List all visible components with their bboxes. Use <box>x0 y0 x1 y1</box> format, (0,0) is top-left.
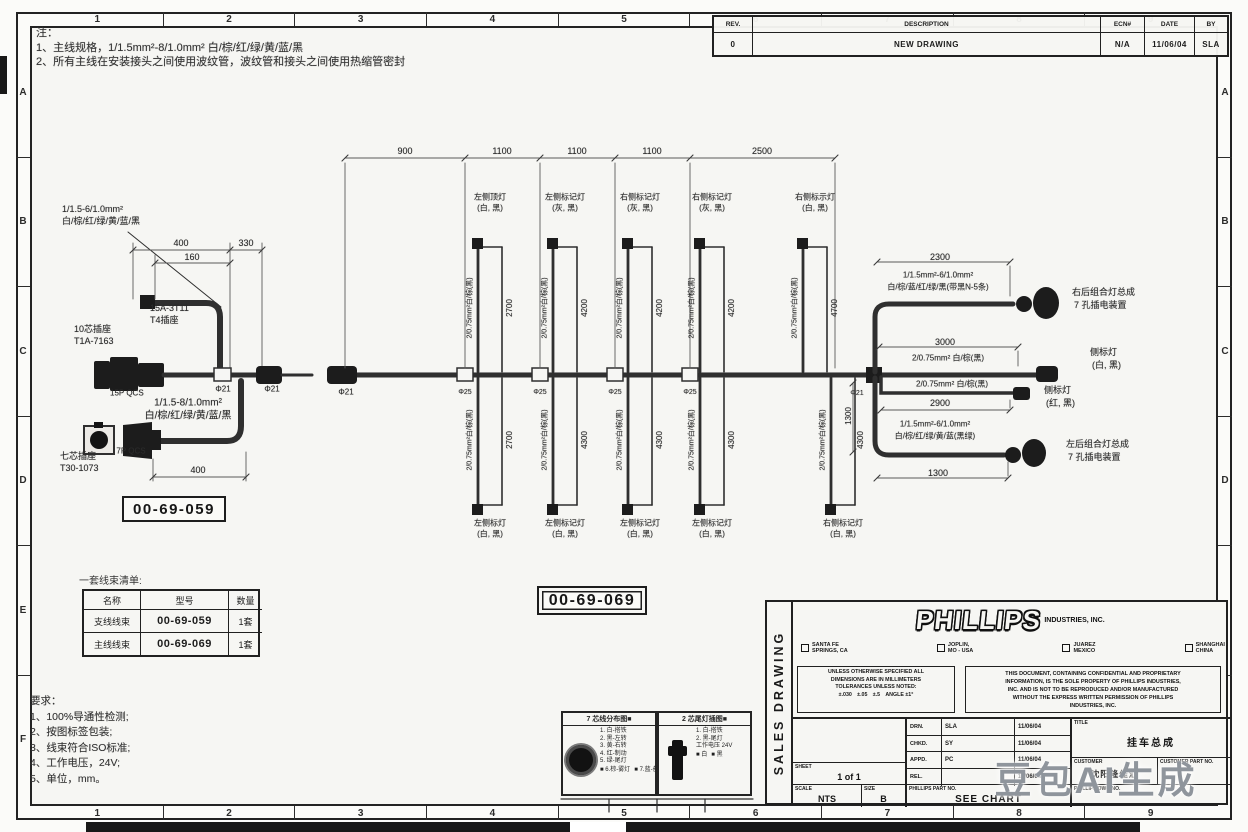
tolerance-line: ±.030 ±.05 ±.5 ANGLE ±1° <box>798 692 954 700</box>
diagram-label: Φ21 <box>850 390 863 397</box>
diagram-label: 1100 <box>567 147 586 156</box>
sheet-cell: SHEET 1 of 1 <box>793 762 907 784</box>
disclaimer-line: INDUSTRIES, INC. <box>966 702 1220 710</box>
diagram-label: (红, 黑) <box>1046 399 1075 408</box>
diagram-label: (白, 黑) <box>477 205 503 213</box>
harness-header: 数量 <box>228 591 262 609</box>
size-cell: SIZE B <box>862 784 907 807</box>
diagram-label: 白/棕/红/绿/黄/蓝/黑 <box>145 412 232 422</box>
tolerance-line: UNLESS OTHERWISE SPECIFIED ALL <box>798 669 954 677</box>
requirement-item: 3、线束符合ISO标准; <box>30 741 130 757</box>
diagram-label: 2/0.75mm²白/棕(黑) <box>617 277 624 338</box>
diagram-label: 2300 <box>930 253 950 262</box>
diagram-label: 2700 <box>506 431 514 449</box>
legend-swatch: ■ 6.棕-雾灯 <box>600 767 630 775</box>
diagram-label: Φ25 <box>458 389 471 396</box>
ai-watermark: 豆包AI生成 <box>950 748 1242 806</box>
diagram-label: Φ21 <box>264 386 279 394</box>
location-checkbox-group: JUAREZMEXICO <box>1062 642 1095 654</box>
diagram-label: 2/0.75mm²白/棕(黑) <box>792 277 799 338</box>
diagram-label: (灰, 黑) <box>627 205 653 213</box>
diagram-label: Φ25 <box>533 389 546 396</box>
diagram-label: 160 <box>184 253 199 262</box>
diagram-label: 左侧标记灯 <box>692 520 732 528</box>
diagram-label: 400 <box>173 239 188 248</box>
checkbox-label-line: MEXICO <box>1073 648 1095 654</box>
checkbox-label-line: MO - USA <box>948 648 973 654</box>
diagram-label: (白, 黑) <box>830 531 856 539</box>
note-line: 1、主线规格，1/1.5mm²-8/1.0mm² 白/棕/红/绿/黄/蓝/黑 <box>36 41 405 56</box>
diagram-label: 7P QCS <box>116 448 145 456</box>
diagram-label: 2/0.75mm² 白/棕(黑) <box>912 355 984 363</box>
harness-cell: 1套 <box>228 632 262 655</box>
diagram-label: 2/0.75mm²白/棕(黑) <box>820 409 827 470</box>
diagram-label: 2/0.75mm²白/棕(黑) <box>467 409 474 470</box>
rev-header: BY <box>1194 17 1227 32</box>
diagram-label: 2700 <box>506 299 514 317</box>
2pin-plug-icon <box>659 726 695 794</box>
disclaimer-line: INFORMATION, IS THE SOLE PROPERTY OF PHI… <box>966 678 1220 686</box>
diagram-label: 1/1.5mm²-6/1.0mm² <box>903 272 973 280</box>
disclaimer-line: INC. AND IS NOT TO BE REPRODUCED AND/OR … <box>966 686 1220 694</box>
diagram-label: 2500 <box>752 147 772 156</box>
phillips-logo: PHILLIPS INDUSTRIES, INC. <box>793 604 1228 636</box>
diagram-label: 1300 <box>845 407 853 425</box>
diagram-label: 7 孔插电装置 <box>1074 301 1127 310</box>
diagram-label: 侧标灯 <box>1044 386 1071 395</box>
diagram-label: T4插座 <box>150 316 179 325</box>
logo-text: PHILLIPS <box>915 605 1043 636</box>
checkbox-label: SHANGHAICHINA <box>1196 642 1225 654</box>
legend-2pin-title: 2 芯尾灯插图■ <box>659 713 750 726</box>
sales-drawing-strip: SALES DRAWING <box>767 602 793 803</box>
checkbox-icon <box>937 644 945 652</box>
diagram-label: 2/0.75mm²白/棕(黑) <box>542 409 549 470</box>
location-checkbox-group: SHANGHAICHINA <box>1185 642 1225 654</box>
signature-role: DRN. <box>907 724 941 730</box>
rev-header: ECN# <box>1100 17 1144 32</box>
legend-7pin-lines: 1. 白-搭铁2. 黑-左转3. 黄-右转4. 红-制动5. 绿-尾灯 ■ 6.… <box>599 726 655 794</box>
sheet-value: 1 of 1 <box>793 769 905 784</box>
harness-cell: 00-69-059 <box>140 609 228 632</box>
legend-2pin: 2 芯尾灯插图■ 1. 白-搭铁2. 黑-尾灯工作电压 24V ■ 白■ 黑 <box>657 711 752 796</box>
harness-list-table: 名称型号数量支线线束00-69-0591套主线线束00-69-0691套 <box>82 589 260 657</box>
legend-line: 工作电压 24V <box>696 743 749 751</box>
diagram-label: 330 <box>238 239 253 248</box>
size-value: B <box>862 791 905 807</box>
diagram-label: (灰, 黑) <box>552 205 578 213</box>
requirement-item: 4、工作电压，24V; <box>30 756 130 772</box>
checkbox-icon <box>801 644 809 652</box>
diagram-label: 15A-3T11 <box>150 304 189 313</box>
signature-date: 11/06/04 <box>1014 719 1070 735</box>
diagram-label: 2/0.75mm²白/棕(黑) <box>689 409 696 470</box>
diagram-label: 1100 <box>492 147 511 156</box>
harness-cell: 1套 <box>228 609 262 632</box>
7pin-connector-icon <box>563 726 599 794</box>
rev-cell: N/A <box>1100 32 1144 55</box>
part-number-box-branch: 00-69-059 <box>122 496 226 522</box>
part-number-main: 00-69-069 <box>549 592 635 610</box>
diagram-label: 2/0.75mm²白/棕(黑) <box>617 409 624 470</box>
location-checkbox-group: SANTA FESPRINGS, CA <box>801 642 848 654</box>
diagram-label: 右后组合灯总成 <box>1072 288 1135 297</box>
rev-header: DATE <box>1144 17 1194 32</box>
sales-drawing-label: SALES DRAWING <box>772 630 786 775</box>
legend-2pin-lines: 1. 白-搭铁2. 黑-尾灯工作电压 24V ■ 白■ 黑 <box>695 726 750 794</box>
rev-cell: 0 <box>714 32 752 55</box>
diagram-label: 白/棕/红/绿/黄/蓝/黑 <box>62 217 140 226</box>
proprietary-notice: THIS DOCUMENT, CONTAINING CONFIDENTIAL A… <box>965 666 1221 713</box>
signature-name: SLA <box>941 719 1014 735</box>
location-checkboxes: SANTA FESPRINGS, CAJOPLIN,MO - USAJUAREZ… <box>801 636 1225 660</box>
drawing-sheet: 123456789 123456789 ABCDEF ABCDEF 注：1、主线… <box>0 0 1248 832</box>
diagram-label: 右侧标记灯 <box>692 194 732 202</box>
diagram-label: 2/0.75mm²白/棕(黑) <box>542 277 549 338</box>
diagram-label: T30-1073 <box>60 464 99 473</box>
checkbox-label: JOPLIN,MO - USA <box>948 642 973 654</box>
harness-list-caption: 一套线束清单: <box>79 572 142 587</box>
tolerance-line: TOLERANCES UNLESS NOTED: <box>798 684 954 692</box>
logo-subtext: INDUSTRIES, INC. <box>1044 617 1104 624</box>
diagram-label: 1100 <box>642 147 661 156</box>
diagram-label: 4300 <box>857 431 865 449</box>
diagram-label: 4200 <box>728 299 736 317</box>
diagram-label: Φ25 <box>683 389 696 396</box>
checkbox-label-line: CHINA <box>1196 648 1225 654</box>
diagram-label: 900 <box>397 147 412 156</box>
legend-swatch: ■ 7.蓝-备用 <box>634 767 655 775</box>
legend-swatch: ■ 黑 <box>711 752 722 760</box>
harness-cell: 00-69-069 <box>140 632 228 655</box>
diagram-label: 左侧标记灯 <box>620 520 660 528</box>
harness-header: 名称 <box>84 591 140 609</box>
harness-header: 型号 <box>140 591 228 609</box>
diagram-label: Φ21 <box>215 386 230 394</box>
checkbox-label: JUAREZMEXICO <box>1073 642 1095 654</box>
requirements-notes: 要求： 1、100%导通性检测;2、按图标签包装;3、线束符合ISO标准;4、工… <box>30 694 130 787</box>
rev-cell: NEW DRAWING <box>752 32 1100 55</box>
checkbox-label: SANTA FESPRINGS, CA <box>812 642 848 654</box>
diagram-label: 4300 <box>581 431 589 449</box>
requirements-title: 要求： <box>30 694 130 710</box>
note-line: 2、所有主线在安装接头之间使用波纹管，波纹管和接头之间使用热缩管密封 <box>36 55 405 70</box>
diagram-label: (白, 黑) <box>802 205 828 213</box>
legend-7pin: 7 芯线分布图■ 1. 白-搭铁2. 黑-左转3. 黄-右转4. 红-制动5. … <box>561 711 657 796</box>
diagram-label: (白, 黑) <box>1092 361 1121 370</box>
disclaimer-line: THIS DOCUMENT, CONTAINING CONFIDENTIAL A… <box>966 670 1220 678</box>
diagram-label: 白/棕/红/绿/黄/蓝(黑绿) <box>895 433 975 441</box>
diagram-label: (白, 黑) <box>477 531 503 539</box>
diagram-label: 4300 <box>728 431 736 449</box>
legend-line: 3. 黄-右转 <box>600 743 654 751</box>
rev-cell: 11/06/04 <box>1144 32 1194 55</box>
scale-cell: SCALE NTS <box>793 784 862 807</box>
diagram-label: 2900 <box>930 399 950 408</box>
legend-line: 1. 白-搭铁 <box>600 728 654 736</box>
note-line: 注： <box>36 26 405 41</box>
diagram-label: (白, 黑) <box>699 531 725 539</box>
checkbox-label-line: SPRINGS, CA <box>812 648 848 654</box>
legend-line: 5. 绿-尾灯 <box>600 758 654 766</box>
diagram-label: T1A-7163 <box>74 337 114 346</box>
diagram-label: 1/1.5-6/1.0mm² <box>62 205 123 214</box>
revision-table: REV.DESCRIPTIONECN#DATEBY0NEW DRAWINGN/A… <box>712 15 1229 57</box>
part-number-branch: 00-69-059 <box>133 501 215 518</box>
general-notes: 注：1、主线规格，1/1.5mm²-8/1.0mm² 白/棕/红/绿/黄/蓝/黑… <box>36 26 405 70</box>
diagram-label: 4700 <box>831 299 839 317</box>
diagram-label: 1/1.5mm²-6/1.0mm² <box>900 421 970 429</box>
diagram-label: (白, 黑) <box>552 531 578 539</box>
diagram-label: 左后组合灯总成 <box>1066 440 1129 449</box>
diagram-label: Φ21 <box>338 389 353 397</box>
diagram-label: (白, 黑) <box>627 531 653 539</box>
scale-value: NTS <box>793 791 861 807</box>
diagram-label: 左侧标记灯 <box>545 194 585 202</box>
diagram-label: 4300 <box>656 431 664 449</box>
diagram-label: 右侧标记灯 <box>620 194 660 202</box>
legend-7pin-title: 7 芯线分布图■ <box>563 713 655 726</box>
signature-role: APPD. <box>907 757 941 763</box>
diagram-label: 400 <box>190 466 205 475</box>
diagram-label: 右侧标记灯 <box>823 520 863 528</box>
part-number-box-main: 00-69-069 <box>537 586 647 615</box>
diagram-label: 1300 <box>928 469 948 478</box>
diagram-label: 左侧顶灯 <box>474 194 506 202</box>
signature-row: DRN.SLA11/06/04 <box>907 719 1070 736</box>
diagram-label: 7 孔插电装置 <box>1068 453 1121 462</box>
diagram-label: 2/0.75mm² 白/棕(黑) <box>916 381 988 389</box>
disclaimer-line: WITHOUT THE EXPRESS WRITTEN PERMISSION O… <box>966 694 1220 702</box>
location-checkbox-group: JOPLIN,MO - USA <box>937 642 973 654</box>
harness-cell: 支线线束 <box>84 609 140 632</box>
diagram-label: 15P QCS <box>110 390 144 398</box>
diagram-label: 右侧标示灯 <box>795 194 835 202</box>
tolerance-line: DIMENSIONS ARE IN MILLIMETERS <box>798 677 954 685</box>
diagram-label: 1/1.5-8/1.0mm² <box>154 399 222 409</box>
diagram-label: 4200 <box>581 299 589 317</box>
spare-cell <box>793 717 907 762</box>
tolerance-block: UNLESS OTHERWISE SPECIFIED ALLDIMENSIONS… <box>797 666 955 713</box>
requirement-item: 2、按图标签包装; <box>30 725 130 741</box>
diagram-label: 左侧标灯 <box>474 520 506 528</box>
diagram-label: 侧标灯 <box>1090 348 1117 357</box>
diagram-label: 10芯插座 <box>74 325 111 334</box>
requirement-item: 5、单位，mm。 <box>30 772 130 788</box>
requirement-item: 1、100%导通性检测; <box>30 710 130 726</box>
rev-header: REV. <box>714 17 752 32</box>
signature-role: REL. <box>907 774 941 780</box>
diagram-label: Φ25 <box>608 389 621 396</box>
rev-cell: SLA <box>1194 32 1227 55</box>
checkbox-icon <box>1062 644 1070 652</box>
diagram-label: 白/棕/蓝/红/绿/黑(带黑N-5条) <box>887 284 988 292</box>
signature-role: CHKD. <box>907 741 941 747</box>
legend-line: 1. 白-搭铁 <box>696 728 749 736</box>
diagram-label: (灰, 黑) <box>699 205 725 213</box>
checkbox-icon <box>1185 644 1193 652</box>
diagram-label: 七芯插座 <box>60 452 96 461</box>
harness-cell: 主线线束 <box>84 632 140 655</box>
diagram-label: 4200 <box>656 299 664 317</box>
diagram-label: 2/0.75mm²白/棕(黑) <box>467 277 474 338</box>
rev-header: DESCRIPTION <box>752 17 1100 32</box>
diagram-label: 2/0.75mm²白/棕(黑) <box>689 277 696 338</box>
legend-swatch: ■ 白 <box>696 752 707 760</box>
diagram-label: 左侧标记灯 <box>545 520 585 528</box>
requirements-items: 1、100%导通性检测;2、按图标签包装;3、线束符合ISO标准;4、工作电压，… <box>30 710 130 788</box>
diagram-label: 3000 <box>935 338 955 347</box>
